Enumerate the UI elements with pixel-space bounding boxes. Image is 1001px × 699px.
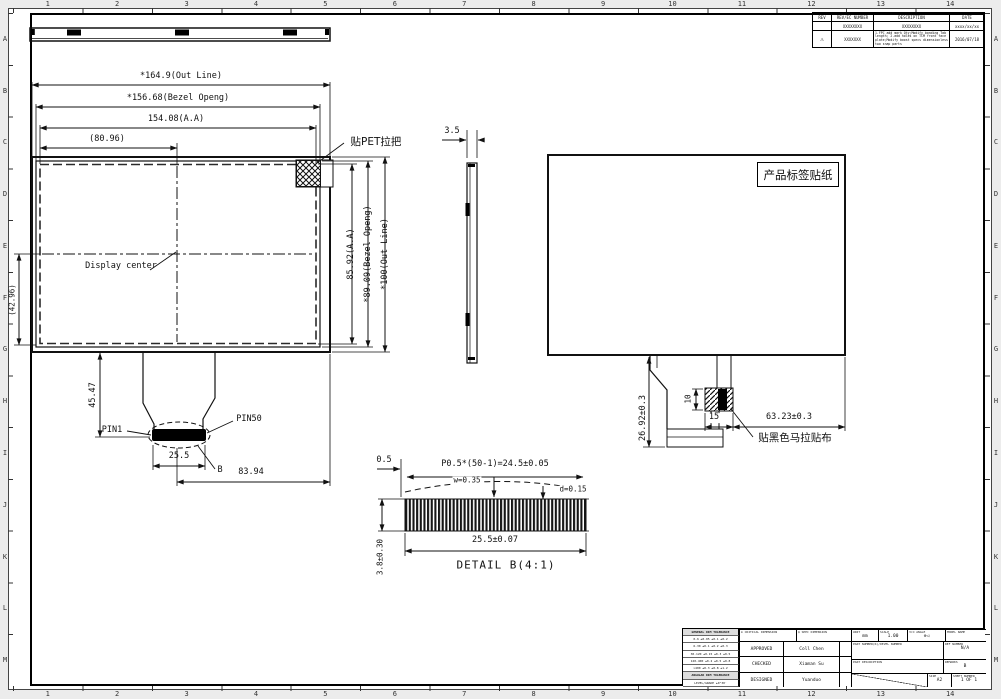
dim-bezel-height: *89.09(Bezel Openg)	[364, 205, 373, 302]
scale-value: 1.00	[879, 634, 907, 639]
sheet-number-value: 1 OF 1	[952, 678, 986, 683]
third-angle-projection-icon: ⊕◁	[908, 634, 945, 639]
dim-pitch: P0.5*(50-1)=24.5±0.05	[441, 460, 548, 470]
label-display-center: Display center	[85, 262, 157, 272]
dim-detail-thickness: 3.8±0.30	[376, 539, 384, 575]
part-number-cell: PART NUMBER(R)/DEVEL NUMBER	[851, 641, 943, 659]
tolerance-row: 6-30 ±0.1 ±0.2 ±0.3	[683, 643, 739, 650]
dim-back-fpc-drop: 26.92±0.3	[639, 395, 648, 441]
rev-row2-warning-icon: ⚠	[813, 30, 831, 47]
spec-dim-note: ◎ SPEC DIMENSION	[796, 629, 851, 641]
dim-outline-width: *164.9(Out Line)	[140, 72, 222, 82]
side-view	[442, 130, 484, 363]
rev-header-rev: REV	[813, 13, 831, 21]
dim-aa-height: 85.92(A.A)	[347, 228, 356, 279]
remarks-value: B	[944, 664, 986, 669]
drawing-linework	[0, 0, 1001, 699]
top-edge-view	[30, 28, 330, 41]
dim-tape-height: 10	[684, 394, 692, 403]
tolerance-row: >400 ±0.3 ±0.8 ±1.2	[683, 665, 739, 672]
drawing-sheet: 1234567891011121314 1234567891011121314 …	[0, 0, 1001, 699]
tolerance-row: 0-6 ±0.05 ±0.1 ±0.2	[683, 636, 739, 643]
remarks-cell: REMARKS B	[943, 659, 986, 673]
front-view	[32, 157, 333, 352]
rev-row2-date: 2016/07/18	[949, 30, 984, 47]
critical-dim-note: ⊕ CRITICAL DIMENSION	[739, 629, 796, 641]
tolerance-row: ANGULAR DIM TOLERANCE	[683, 672, 739, 679]
dim-tape-offset: 63.23±0.3	[766, 413, 812, 423]
tolerance-row: GENERAL DIM TOLERANCE	[683, 629, 739, 636]
rev-header-description: DESCRIPTION	[873, 13, 949, 21]
detail-b-title: DETAIL B(4:1)	[456, 559, 555, 572]
tolerance-row: LEVEL/GRADE ±0°30′	[683, 680, 739, 687]
approved-label: APPROVED	[739, 641, 783, 656]
dim-lead: 0.5	[376, 456, 391, 466]
rev-row2-number: XXXXXXX	[831, 30, 873, 47]
tolerance-row: 30-120 ±0.15 ±0.3 ±0.5	[683, 651, 739, 658]
rev-row1-description: XXXXXXXX	[873, 21, 949, 30]
sheet-number-cell: SHEET NUMBER 1 OF 1	[951, 673, 986, 687]
dim-detail-width: 25.5±0.07	[472, 536, 518, 546]
leader-lines	[127, 143, 753, 469]
dim-outline-height: *100(Out Line)	[381, 218, 390, 290]
unit-value: mm	[852, 634, 878, 639]
checked-sig	[839, 656, 851, 671]
rev-row2-description: 1.FPC add mark Qty;Modify bonding Tab le…	[873, 30, 949, 47]
part-description-cell: PART DESCRIPTION	[851, 659, 943, 673]
projection-cell: 3rd ANGLE ⊕◁	[907, 629, 945, 641]
ref-number-cell: REF NUMBER N/A	[943, 641, 986, 659]
dim-aa-width: 154.08(A.A)	[148, 115, 204, 125]
checked-label: CHECKED	[739, 656, 783, 671]
dim-connector-width: 25.5	[169, 452, 189, 462]
dim-half-width: (80.96)	[89, 135, 125, 145]
size-value: A2	[928, 678, 951, 683]
rev-header-number: REV/EC NUMBER	[831, 13, 873, 21]
label-pin50: PIN50	[236, 415, 262, 425]
model-name-cell: MODEL NAME	[945, 629, 986, 641]
rev-row1-rev	[813, 21, 831, 30]
dim-tape-width: 15	[708, 413, 720, 423]
front-fpc-tail	[143, 353, 215, 448]
front-dimensions	[14, 82, 390, 486]
revision-table: REV REV/EC NUMBER DESCRIPTION DATE XXXXX…	[812, 12, 985, 48]
tolerance-table: GENERAL DIM TOLERANCE0-6 ±0.05 ±0.1 ±0.2…	[683, 629, 739, 687]
label-pin1: PIN1	[102, 426, 122, 436]
size-cell: SIZE A2	[927, 673, 951, 687]
ref-number-value: N/A	[944, 646, 986, 651]
dim-half-height: (42.96)	[8, 284, 16, 316]
dim-thickness: 3.5	[444, 127, 459, 137]
label-mylar-tape: 贴黑色马拉贴布	[758, 432, 832, 444]
designed-label: DESIGNED	[739, 672, 783, 687]
title-block: GENERAL DIM TOLERANCE0-6 ±0.05 ±0.1 ±0.2…	[682, 628, 985, 686]
unit-cell: UNIT mm	[851, 629, 878, 641]
designed-sig	[839, 672, 851, 687]
back-view	[548, 155, 845, 447]
label-detail-ref: B	[217, 466, 222, 476]
checked-name: Xiaman Su	[783, 656, 839, 671]
scale-cell: SCALE 1.00	[878, 629, 907, 641]
approved-name: Coll Chen	[783, 641, 839, 656]
designed-name: Yuanduo	[783, 672, 839, 687]
dim-bezel-width: *156.68(Bezel Openg)	[127, 94, 229, 104]
label-pet-tab: 贴PET拉把	[351, 136, 402, 148]
model-name-label: MODEL NAME	[946, 630, 986, 634]
signature-slash-cell	[851, 673, 927, 687]
rev-header-date: DATE	[949, 13, 984, 21]
approved-sig	[839, 641, 851, 656]
dim-pin-depth: d=0.15	[558, 486, 587, 495]
product-label-sticker: 产品标签贴纸	[757, 162, 839, 187]
dim-fpc-drop: 45.47	[89, 382, 98, 408]
dim-connector-offset: 83.94	[238, 468, 264, 478]
dim-pin-width: w=0.35	[452, 477, 481, 486]
rev-row1-date: xxxx/xx/xx	[949, 21, 984, 30]
rev-row1-number: XXXXXXXX	[831, 21, 873, 30]
tolerance-row: 120-400 ±0.2 ±0.5 ±0.8	[683, 658, 739, 665]
